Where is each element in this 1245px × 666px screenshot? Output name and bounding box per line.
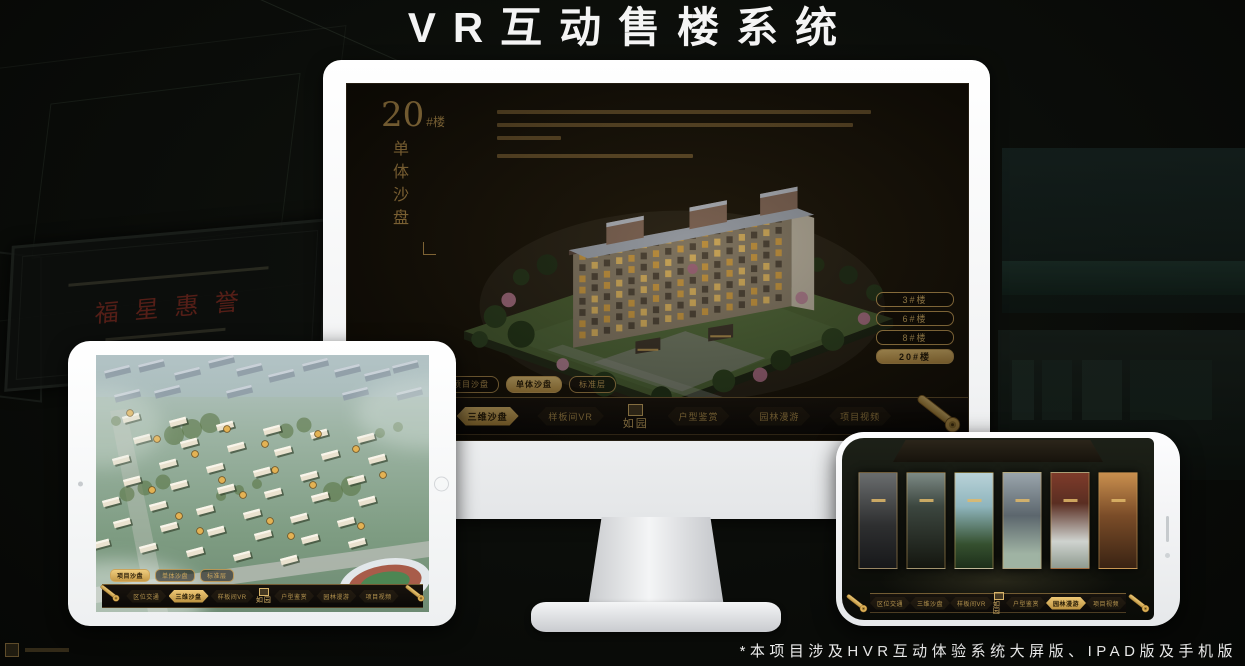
tablet-nav-location-traffic[interactable]: 区位交通 bbox=[126, 590, 166, 603]
page-headline: 20#楼 单体沙盘 bbox=[381, 98, 445, 252]
tablet-nav-garden-roam[interactable]: 园林漫游 bbox=[316, 590, 356, 603]
tablet-nav-unit-appreciation[interactable]: 户型鉴赏 bbox=[274, 590, 314, 603]
brand-logo: 如园 bbox=[623, 404, 649, 429]
tablet-bottom-nav: 区位交通 三维沙盘 样板间VR 如园 户型鉴赏 园林漫游 项目视频 bbox=[102, 584, 423, 608]
monitor-stand-neck bbox=[588, 517, 724, 607]
phone-camera-icon bbox=[1165, 553, 1170, 558]
tablet-brand-logo: 如园 bbox=[256, 588, 272, 604]
phone-bottom-nav: 区位交通 三维沙盘 样板间VR 如园 户型鉴赏 园林漫游 项目视频 bbox=[870, 593, 1126, 613]
tablet-home-button[interactable] bbox=[434, 476, 449, 491]
floor-button-group: 3#楼 6#楼 8#楼 20#楼 bbox=[876, 292, 954, 364]
floor-button-20[interactable]: 20#楼 bbox=[876, 349, 954, 364]
tablet-nav-model-room-vr[interactable]: 样板间VR bbox=[211, 590, 254, 603]
courtyard-roof bbox=[893, 440, 1103, 462]
phone-nav-garden-roam[interactable]: 园林漫游 bbox=[1046, 597, 1086, 610]
poster-stage: 福星惠誉 VR互动售楼系统 *本项目涉及HVR互动体验系统大屏版、IPAD版及手… bbox=[0, 0, 1245, 666]
sandbox-subtabs: 项目沙盘 单体沙盘 标准层 bbox=[443, 376, 616, 393]
floor-button-3[interactable]: 3#楼 bbox=[876, 292, 954, 307]
tablet-brand-seal-icon bbox=[259, 588, 269, 596]
scene-panel-1[interactable] bbox=[859, 472, 898, 569]
tablet-subtab-single-sandbox[interactable]: 单体沙盘 bbox=[155, 569, 195, 582]
phone-speaker-icon bbox=[1166, 516, 1169, 542]
tablet-screen: 项目沙盘 单体沙盘 标准层 区位交通 三维沙盘 样板间VR 如园 户型鉴赏 园林… bbox=[96, 355, 429, 612]
nav-item-model-room-vr[interactable]: 样板间VR bbox=[537, 407, 604, 426]
phone-scroll-right-icon[interactable] bbox=[1126, 590, 1152, 616]
scene-panel-2[interactable] bbox=[907, 472, 946, 569]
scroll-menu-icon[interactable] bbox=[912, 390, 966, 436]
phone-nav-3d-sandbox[interactable]: 三维沙盘 bbox=[910, 597, 950, 610]
poster-title: VR互动售楼系统 bbox=[0, 0, 1245, 56]
scene-panel-3[interactable] bbox=[955, 472, 994, 569]
scene-panel-2-label bbox=[919, 499, 933, 502]
phone-nav-model-room-vr[interactable]: 样板间VR bbox=[950, 597, 993, 610]
subtab-single-sandbox[interactable]: 单体沙盘 bbox=[506, 376, 562, 393]
subtab-standard-floor[interactable]: 标准层 bbox=[569, 376, 616, 393]
tablet-nav-project-video[interactable]: 项目视频 bbox=[359, 590, 399, 603]
brand-logo-text: 如园 bbox=[623, 418, 649, 429]
sandbox-3d-viewport[interactable] bbox=[447, 142, 907, 408]
plaque-brand-text: 福星惠誉 bbox=[78, 280, 256, 330]
phone-brand-logo-text: 如园 bbox=[993, 601, 1006, 615]
nav-item-3d-sandbox[interactable]: 三维沙盘 bbox=[457, 407, 519, 426]
tablet-subtabs: 项目沙盘 单体沙盘 标准层 bbox=[110, 569, 234, 582]
tablet-brand-logo-text: 如园 bbox=[256, 597, 272, 604]
background-photo-canal bbox=[1002, 148, 1245, 313]
tablet-nav-3d-sandbox[interactable]: 三维沙盘 bbox=[169, 590, 209, 603]
building-number: 20 bbox=[381, 95, 424, 135]
phone-nav-location-traffic[interactable]: 区位交通 bbox=[870, 597, 910, 610]
scene-panel-4[interactable] bbox=[1003, 472, 1042, 569]
nav-item-project-video[interactable]: 项目视频 bbox=[829, 407, 891, 426]
poster-footnote: *本项目涉及HVR互动体验系统大屏版、IPAD版及手机版 bbox=[740, 640, 1237, 661]
scene-panel-4-label bbox=[1015, 499, 1029, 502]
phone-nav-project-video[interactable]: 项目视频 bbox=[1086, 597, 1126, 610]
gold-corner-bracket bbox=[423, 242, 436, 255]
scene-panel-1-label bbox=[871, 499, 885, 502]
plaque-small-text-row2 bbox=[105, 327, 225, 340]
brand-seal-icon bbox=[628, 404, 643, 416]
phone-brand-logo: 如园 bbox=[993, 592, 1006, 615]
corner-brand-mark bbox=[5, 642, 105, 658]
tablet-device: 项目沙盘 单体沙盘 标准层 区位交通 三维沙盘 样板间VR 如园 户型鉴赏 园林… bbox=[68, 341, 456, 626]
phone-nav-unit-appreciation[interactable]: 户型鉴赏 bbox=[1006, 597, 1046, 610]
scene-panel-6[interactable] bbox=[1099, 472, 1138, 569]
phone-device: 区位交通 三维沙盘 样板间VR 如园 户型鉴赏 园林漫游 项目视频 bbox=[836, 432, 1180, 626]
scene-panel-3-label bbox=[967, 499, 981, 502]
scene-panel-6-label bbox=[1111, 499, 1125, 502]
floor-button-8[interactable]: 8#楼 bbox=[876, 330, 954, 345]
monitor-stand-base bbox=[531, 602, 781, 632]
phone-scroll-left-icon[interactable] bbox=[844, 590, 870, 616]
scene-panel-5-label bbox=[1063, 499, 1077, 502]
nav-item-garden-roam[interactable]: 园林漫游 bbox=[748, 407, 810, 426]
scene-panel-5[interactable] bbox=[1051, 472, 1090, 569]
nav-item-unit-appreciation[interactable]: 户型鉴赏 bbox=[668, 407, 730, 426]
building-number-suffix: #楼 bbox=[426, 115, 445, 129]
tablet-scroll-right-icon[interactable] bbox=[403, 580, 427, 606]
tablet-subtab-standard-floor[interactable]: 标准层 bbox=[200, 569, 234, 582]
tablet-scroll-left-icon[interactable] bbox=[98, 580, 122, 606]
phone-screen: 区位交通 三维沙盘 样板间VR 如园 户型鉴赏 园林漫游 项目视频 bbox=[842, 438, 1154, 620]
corner-brand-icon bbox=[5, 643, 19, 657]
floor-button-6[interactable]: 6#楼 bbox=[876, 311, 954, 326]
tablet-camera-icon bbox=[78, 481, 83, 486]
phone-brand-seal-icon bbox=[994, 592, 1004, 600]
scene-panel-group bbox=[859, 472, 1138, 569]
page-subtitle-vertical: 单体沙盘 bbox=[387, 140, 411, 252]
